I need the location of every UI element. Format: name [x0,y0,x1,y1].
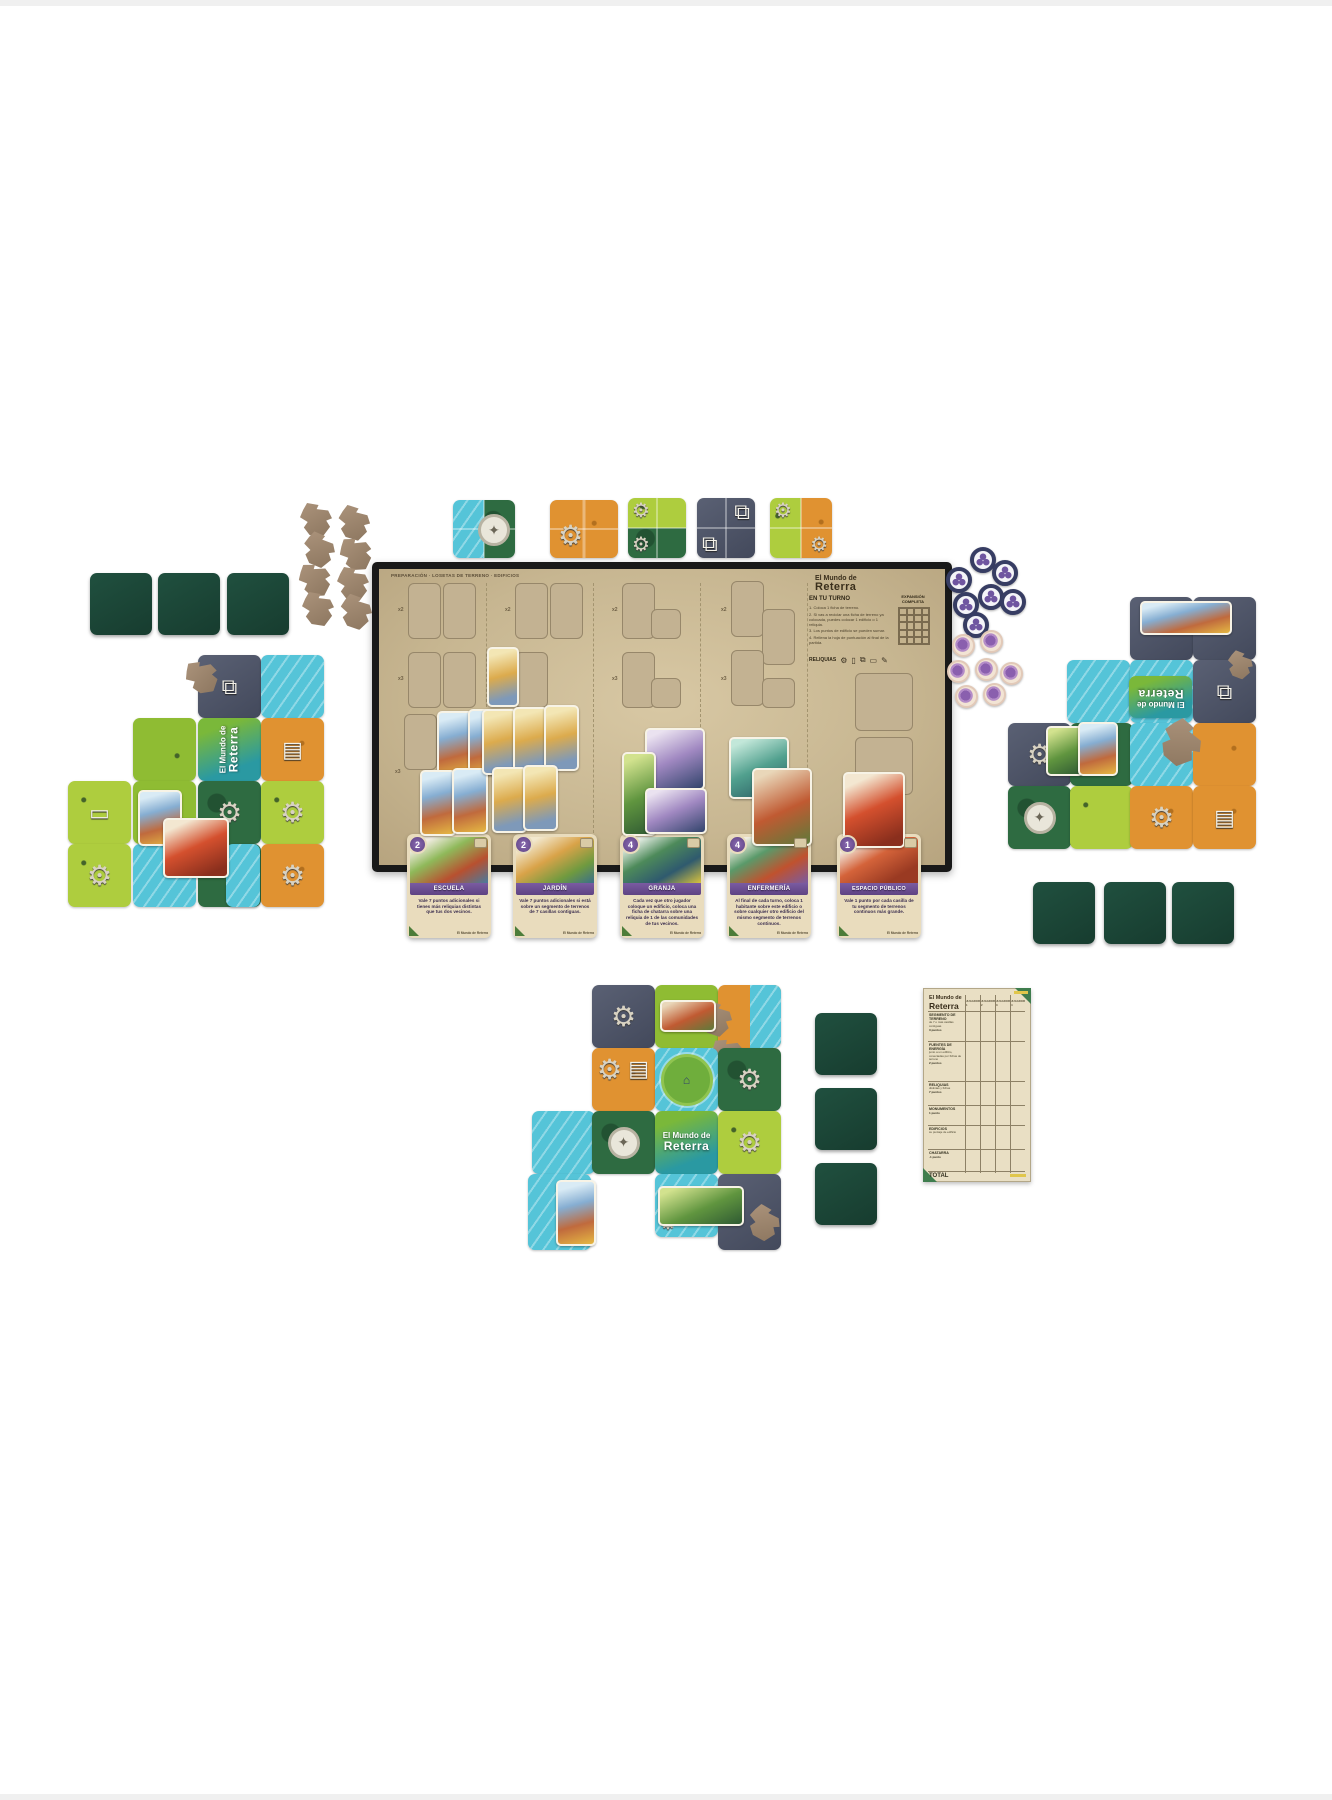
ruin-token [302,592,334,626]
ruin-token [299,530,338,571]
card-footer-logo: El Mundo de Reterra [887,932,918,936]
gear-icon: ⚙ [810,535,828,555]
expansion-label: EXPANSIÓN COMPLETA [893,595,933,605]
card-title: ESPACIO PÚBLICO [840,883,918,895]
books-icon: ⧉ [222,676,238,698]
photo-edge-top [0,0,1332,6]
habitant-tile-stack [420,770,456,836]
gear-icon: ⚙ [597,1056,622,1084]
logo-tile-text: El Mundo deReterra [663,1132,711,1153]
logo-tile: El Mundo deReterra [1129,676,1192,718]
card-title: ESCUELA [410,883,488,895]
books-icon: ⧉ [860,655,866,665]
terrain-tile-desert: ⚙ [261,844,324,907]
habitant-card [1140,601,1232,635]
leaf-icon [839,926,849,936]
card-footer-logo: El Mundo de Reterra [563,932,594,936]
pad-col-header: JUGADOR 4 [1011,999,1024,1007]
facedown-tile-pile [90,573,152,635]
gear-icon: ⚙ [737,1066,762,1094]
facedown-tile-pile [1033,882,1095,944]
wheel-token [1000,589,1026,615]
terrain-tile-stone: ⚙ [592,985,655,1048]
habitant-card [1078,722,1118,776]
compass-medal-icon: ✦ [1024,802,1056,834]
logo-tile: El Mundo deReterra [655,1111,718,1174]
card-title: JARDÍN [516,883,594,895]
count-label: x2 [398,607,404,613]
photo-edge-bottom [0,1794,1332,1800]
facedown-tile-pile [1104,882,1166,944]
facedown-tile-pile [815,1088,877,1150]
scroll-icon: ▤ [628,1058,649,1080]
card-title: ENFERMERÍA [730,883,808,895]
card-body-text: Al final de cada turno, coloca 1 habitan… [730,895,808,927]
building-card [658,1186,744,1226]
scrap-token [983,683,1006,706]
scrap-token [955,685,978,708]
count-label: x2 [612,607,618,613]
gear-icon: ⚙ [558,522,583,550]
terrain-tile-grass [133,718,196,781]
turn-step: 2. Si vas a reciclar una ficha de terren… [809,612,891,627]
terrain-tile-desert [1193,723,1256,786]
wheel-token [946,567,972,593]
scrap-token [980,630,1003,653]
building-tile-stack [752,768,812,846]
pad-total-label: TOTAL [929,1173,963,1180]
market-tile-desert: ⚙ [550,500,618,558]
scrap-token [975,658,998,681]
terrain-tile-grass: ⚙ [68,844,131,907]
facedown-tile-pile [158,573,220,635]
island-start-tile: ⌂ [661,1054,713,1106]
card-type-icon [580,838,593,848]
compass-medal-icon: ✦ [478,514,510,546]
bowl-icon: ▭ [870,656,878,665]
castle-building-card [163,818,229,878]
card-number: 1 [838,835,857,854]
tile-outline-square [855,673,913,731]
count-label: x3 [612,676,618,682]
card-type-icon [794,838,807,848]
card-number: 2 [514,835,533,854]
card-type-icon [474,838,487,848]
turn-step: 4. Rellena la hoja de puntuación al fina… [809,635,891,645]
card-jardin: 2 JARDÍN Vale 7 puntos adicionales si es… [513,834,597,938]
scrap-token [947,660,970,683]
relic-icon: ▭ [89,802,110,824]
ruin-token [300,503,332,537]
expansion-label-2: COMPLETA [902,599,924,604]
card-type-icon [687,838,700,848]
habitant-tile-stack [452,768,488,834]
card-footer-logo: El Mundo de Reterra [670,932,701,936]
tile-outline-S [731,650,764,706]
terrain-tile-grass: ▭ [68,781,131,844]
tile-outline-domino [515,652,548,708]
facedown-tile-pile [815,1013,877,1075]
gear-icon: ⚙ [632,501,650,521]
gear-icon: ⚙ [774,501,792,521]
card-number: 4 [728,835,747,854]
gear-icon: ⚙ [840,656,847,665]
turn-step: 3. Los puntos de edificio se pueden suma… [809,628,891,633]
pad-row-label: CHATARRA-1 punto [929,1151,963,1160]
terrain-tile-grass: ⚙ [718,1111,781,1174]
gear-icon: ⚙ [87,862,112,890]
terrain-tile-grass: ⚙ [261,781,324,844]
pad-row-label: MONUMENTOS1 punto [929,1107,963,1116]
tile-outline-S [762,678,795,708]
market-tile-stone-books: ⧉ ⧉ [697,498,755,558]
compass-medal-icon: ✦ [608,1127,640,1159]
card-footer-logo: El Mundo de Reterra [777,932,808,936]
books-icon: ⧉ [1217,681,1233,703]
market-tile-water-forest: ✦ [453,500,515,558]
count-label: x3 [398,676,404,682]
board-fine-print: PREPARACIÓN · LOSETAS DE TERRENO · EDIFI… [391,573,519,578]
facedown-tile-pile [227,573,289,635]
terrain-tile-desert: ▤ [1193,786,1256,849]
terrain-tile-forest: ✦ [1008,786,1071,849]
market-tile-grass-forest: ⚙ ⚙ [628,498,686,558]
score-pad: El Mundo deReterra JUGADOR 1 JUGADOR 2 J… [923,988,1031,1182]
card-body-text: Vale 7 puntos adicionales si tienes más … [410,895,488,915]
building-tile-stack [482,709,517,775]
terrain-tile-water [1067,660,1130,723]
bus-building-card [660,1000,716,1032]
board-game-photo: ✦ ⚙ ⚙ ⚙ ⧉ ⧉ ⚙ ⚙ PREPARACIÓN · LOSETAS DE… [0,0,1332,1800]
gear-icon: ⚙ [1149,804,1174,832]
building-tile-stack [544,705,579,771]
market-tile-grass-desert: ⚙ ⚙ [770,498,832,558]
card-number: 4 [621,835,640,854]
card-body-text: Vale 1 punto por cada casilla de tu segm… [840,895,918,915]
scrap-token [952,634,975,657]
card-title: GRANJA [623,883,701,895]
terrain-tile-forest: ✦ [592,1111,655,1174]
leaf-icon [409,926,419,936]
building-tile-stack [492,767,527,833]
facedown-tile-pile [1172,882,1234,944]
water-terrain [750,985,782,1048]
terrain-tile-forest: ⚙ [718,1048,781,1111]
logo-tile-text: El Mundo deReterra [1137,687,1185,708]
tile-outline-domino [550,583,583,639]
card-body-text: Vale 7 puntos adicionales si está sobre … [516,895,594,915]
column-divider [593,583,594,833]
terrain-tile-grass [1070,786,1133,849]
ruin-token [336,504,372,542]
terrain-tile-water [261,655,324,718]
tile-outline-domino [404,714,437,770]
pad-col-header: JUGADOR 1 [966,999,979,1007]
card-number: 2 [408,835,427,854]
card-body-text: Cada vez que otro jugador coloque un edi… [623,895,701,927]
terrain-tile-desert: ▤ [261,718,324,781]
building-tile [487,647,519,707]
pad-table: JUGADOR 1 JUGADOR 2 JUGADOR 3 JUGADOR 4 … [928,995,1025,1173]
main-board: PREPARACIÓN · LOSETAS DE TERRENO · EDIFI… [372,562,952,872]
tile-outline-domino [443,583,476,639]
wheel-token [992,560,1018,586]
pad-row-label: RELIQUIASdistintas y fichas7 puntos [929,1083,963,1095]
pencil-icon: ✎ [881,656,888,665]
reliquias-label: RELIQUIAS [809,657,836,663]
expansion-grid [898,607,930,645]
building-tile-stack [523,765,558,831]
pad-col-header: JUGADOR 2 [981,999,994,1007]
tile-outline-L [651,678,681,708]
phone-icon: ▯ [851,656,855,665]
card-enfermeria: 4 ENFERMERÍA Al final de cada turno, col… [727,834,811,938]
facedown-tile-pile [815,1163,877,1225]
turn-steps: 1. Coloca 1 ficha de terreno. 2. Si vas … [809,605,891,646]
count-label: x2 [721,607,727,613]
tile-outline-L [651,609,681,639]
tile-outline-domino [408,583,441,639]
ruin-token [337,592,374,631]
pad-col-header: JUGADOR 3 [996,999,1009,1007]
pad-row-label: FUENTES DE ENERGÍAjunto a un edificio, c… [929,1043,963,1066]
terrain-tile-desert: ⚙ ▤ [592,1048,655,1111]
gear-icon: ⚙ [611,1003,636,1031]
turn-step: 1. Coloca 1 ficha de terreno. [809,605,891,610]
scrap-token [1000,662,1023,685]
gear-icon: ⚙ [280,799,305,827]
card-type-icon [904,838,917,848]
logo-tile-text: El Mundo deReterra [219,726,240,774]
board-logo-line2: Reterra [815,582,857,593]
card-espacio-publico: 1 ESPACIO PÚBLICO Vale 1 punto por cada … [837,834,921,938]
count-label: x3 [395,769,401,775]
pad-row-label: EDIFICIOSsu puntaje de edificio [929,1127,963,1134]
leaf-icon [622,926,632,936]
tile-outline-S [731,581,764,637]
pad-row-label: SEGMENTO DE TERRENOde 7 o más casillas c… [929,1013,963,1032]
reliquias-row: RELIQUIAS ⚙ ▯ ⧉ ▭ ✎ [809,655,888,665]
logo-tile: El Mundo deReterra [198,718,261,781]
books-icon: ⧉ [702,533,718,555]
scroll-icon: ▤ [1214,807,1235,829]
terrain-tile-desert: ⚙ [1130,786,1193,849]
board-logo: El Mundo de Reterra [815,575,857,593]
pad-accent [1014,991,1028,994]
card-granja: 4 GRANJA Cada vez que otro jugador coloq… [620,834,704,938]
terrain-tile-water: ⌂ [655,1048,718,1111]
gear-icon: ⚙ [632,535,650,555]
count-label: x3 [721,676,727,682]
pad-accent [1010,1174,1026,1177]
habitant-card [556,1180,596,1246]
tile-outline-domino [408,652,441,708]
building-tile-stack [645,788,707,834]
scroll-icon: ▤ [282,739,303,761]
card-footer-logo: El Mundo de Reterra [457,932,488,936]
card-escuela: 2 ESCUELA Vale 7 puntos adicionales si t… [407,834,491,938]
tile-outline-domino [515,583,548,639]
gear-icon: ⚙ [280,862,305,890]
terrain-tile-water [532,1111,595,1174]
building-tile-stack [513,707,548,773]
tile-outline-S [762,609,795,665]
books-icon: ⧉ [734,501,750,523]
gear-icon: ⚙ [737,1129,762,1157]
leaf-icon [515,926,525,936]
turn-header: EN TU TURNO [809,596,850,602]
tile-outline-domino [443,652,476,708]
count-label: x2 [505,607,511,613]
leaf-icon [729,926,739,936]
terrain-tile-water [226,844,260,907]
